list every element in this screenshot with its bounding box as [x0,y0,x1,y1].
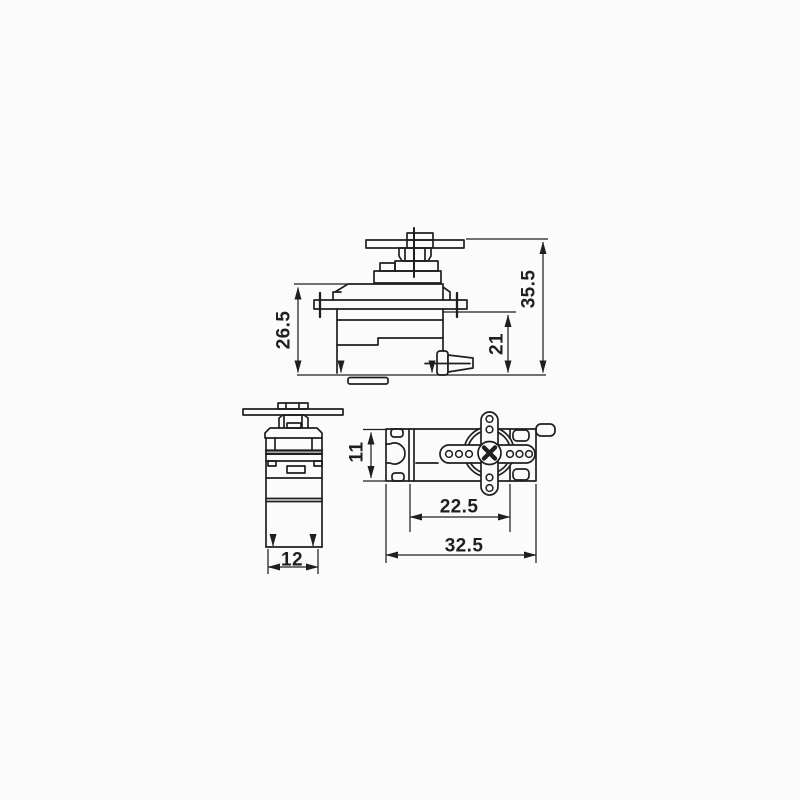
screw-boss-bottom-left [392,473,404,481]
flange-slot-keyhole [386,443,405,464]
gearbox-step-upper [395,261,438,271]
horn-hole [466,451,473,458]
horn-hole [526,451,533,458]
case-step-line [337,338,443,345]
side-view: 12 [243,403,343,574]
side-horn [243,403,343,428]
screw-boss-bottom-right [513,469,529,480]
flange-tab-left [268,461,276,466]
horn-hole [446,451,453,458]
horn-top-hub-edge [278,403,308,409]
horn-hole [456,451,463,458]
top-view: 11 22.5 32.5 [347,412,556,563]
horn-hole [486,485,493,492]
technical-drawing-page: 26.5 21 35.5 [0,0,800,800]
dim-label-32-5: 32.5 [445,536,484,557]
case-seam-3 [266,499,322,502]
horn-hole [486,474,493,481]
cap-inner-lines [275,438,312,450]
dim-label-11: 11 [347,442,368,463]
gearbox-step-lower [374,271,441,283]
horn-hole [507,451,514,458]
bottom-foot-tab [348,378,388,385]
screw-boss-top-left [391,429,403,437]
dimension-body-width: 12 [268,549,318,574]
side-servo-body [265,428,322,547]
front-servo-body [297,261,546,384]
flange-pocket [287,466,305,473]
horn-bar-edge [243,409,343,415]
front-view: 26.5 21 35.5 [274,228,549,384]
cross-servo-horn [440,412,535,495]
dimension-body-depth: 11 [347,430,387,482]
dim-label-35-5: 35.5 [519,270,540,309]
screw-boss-top-right [513,430,529,441]
dim-label-12: 12 [281,550,303,571]
servo-dimension-drawing: 26.5 21 35.5 [0,0,800,800]
cable-exit-stub [536,424,555,436]
horn-hole [486,426,493,433]
shaft-hub-edge [279,415,308,428]
case-top-outline [333,284,450,300]
horn-bar-ticks [407,240,433,248]
horn-hole [486,416,493,423]
mounting-flange [314,300,467,309]
horn-top-hub [407,233,433,240]
flange-body-boundary-left [409,429,414,481]
horn-hole [516,451,523,458]
dim-label-26-5: 26.5 [274,311,295,350]
gearbox-cap [265,428,322,438]
dim-label-21: 21 [487,333,508,355]
case-seam-band [266,451,322,454]
dim-label-22-5: 22.5 [440,497,479,518]
flange-tab-right [314,461,322,466]
horn-hub-ticks [286,403,299,409]
gearbox-side-tab [380,263,395,271]
